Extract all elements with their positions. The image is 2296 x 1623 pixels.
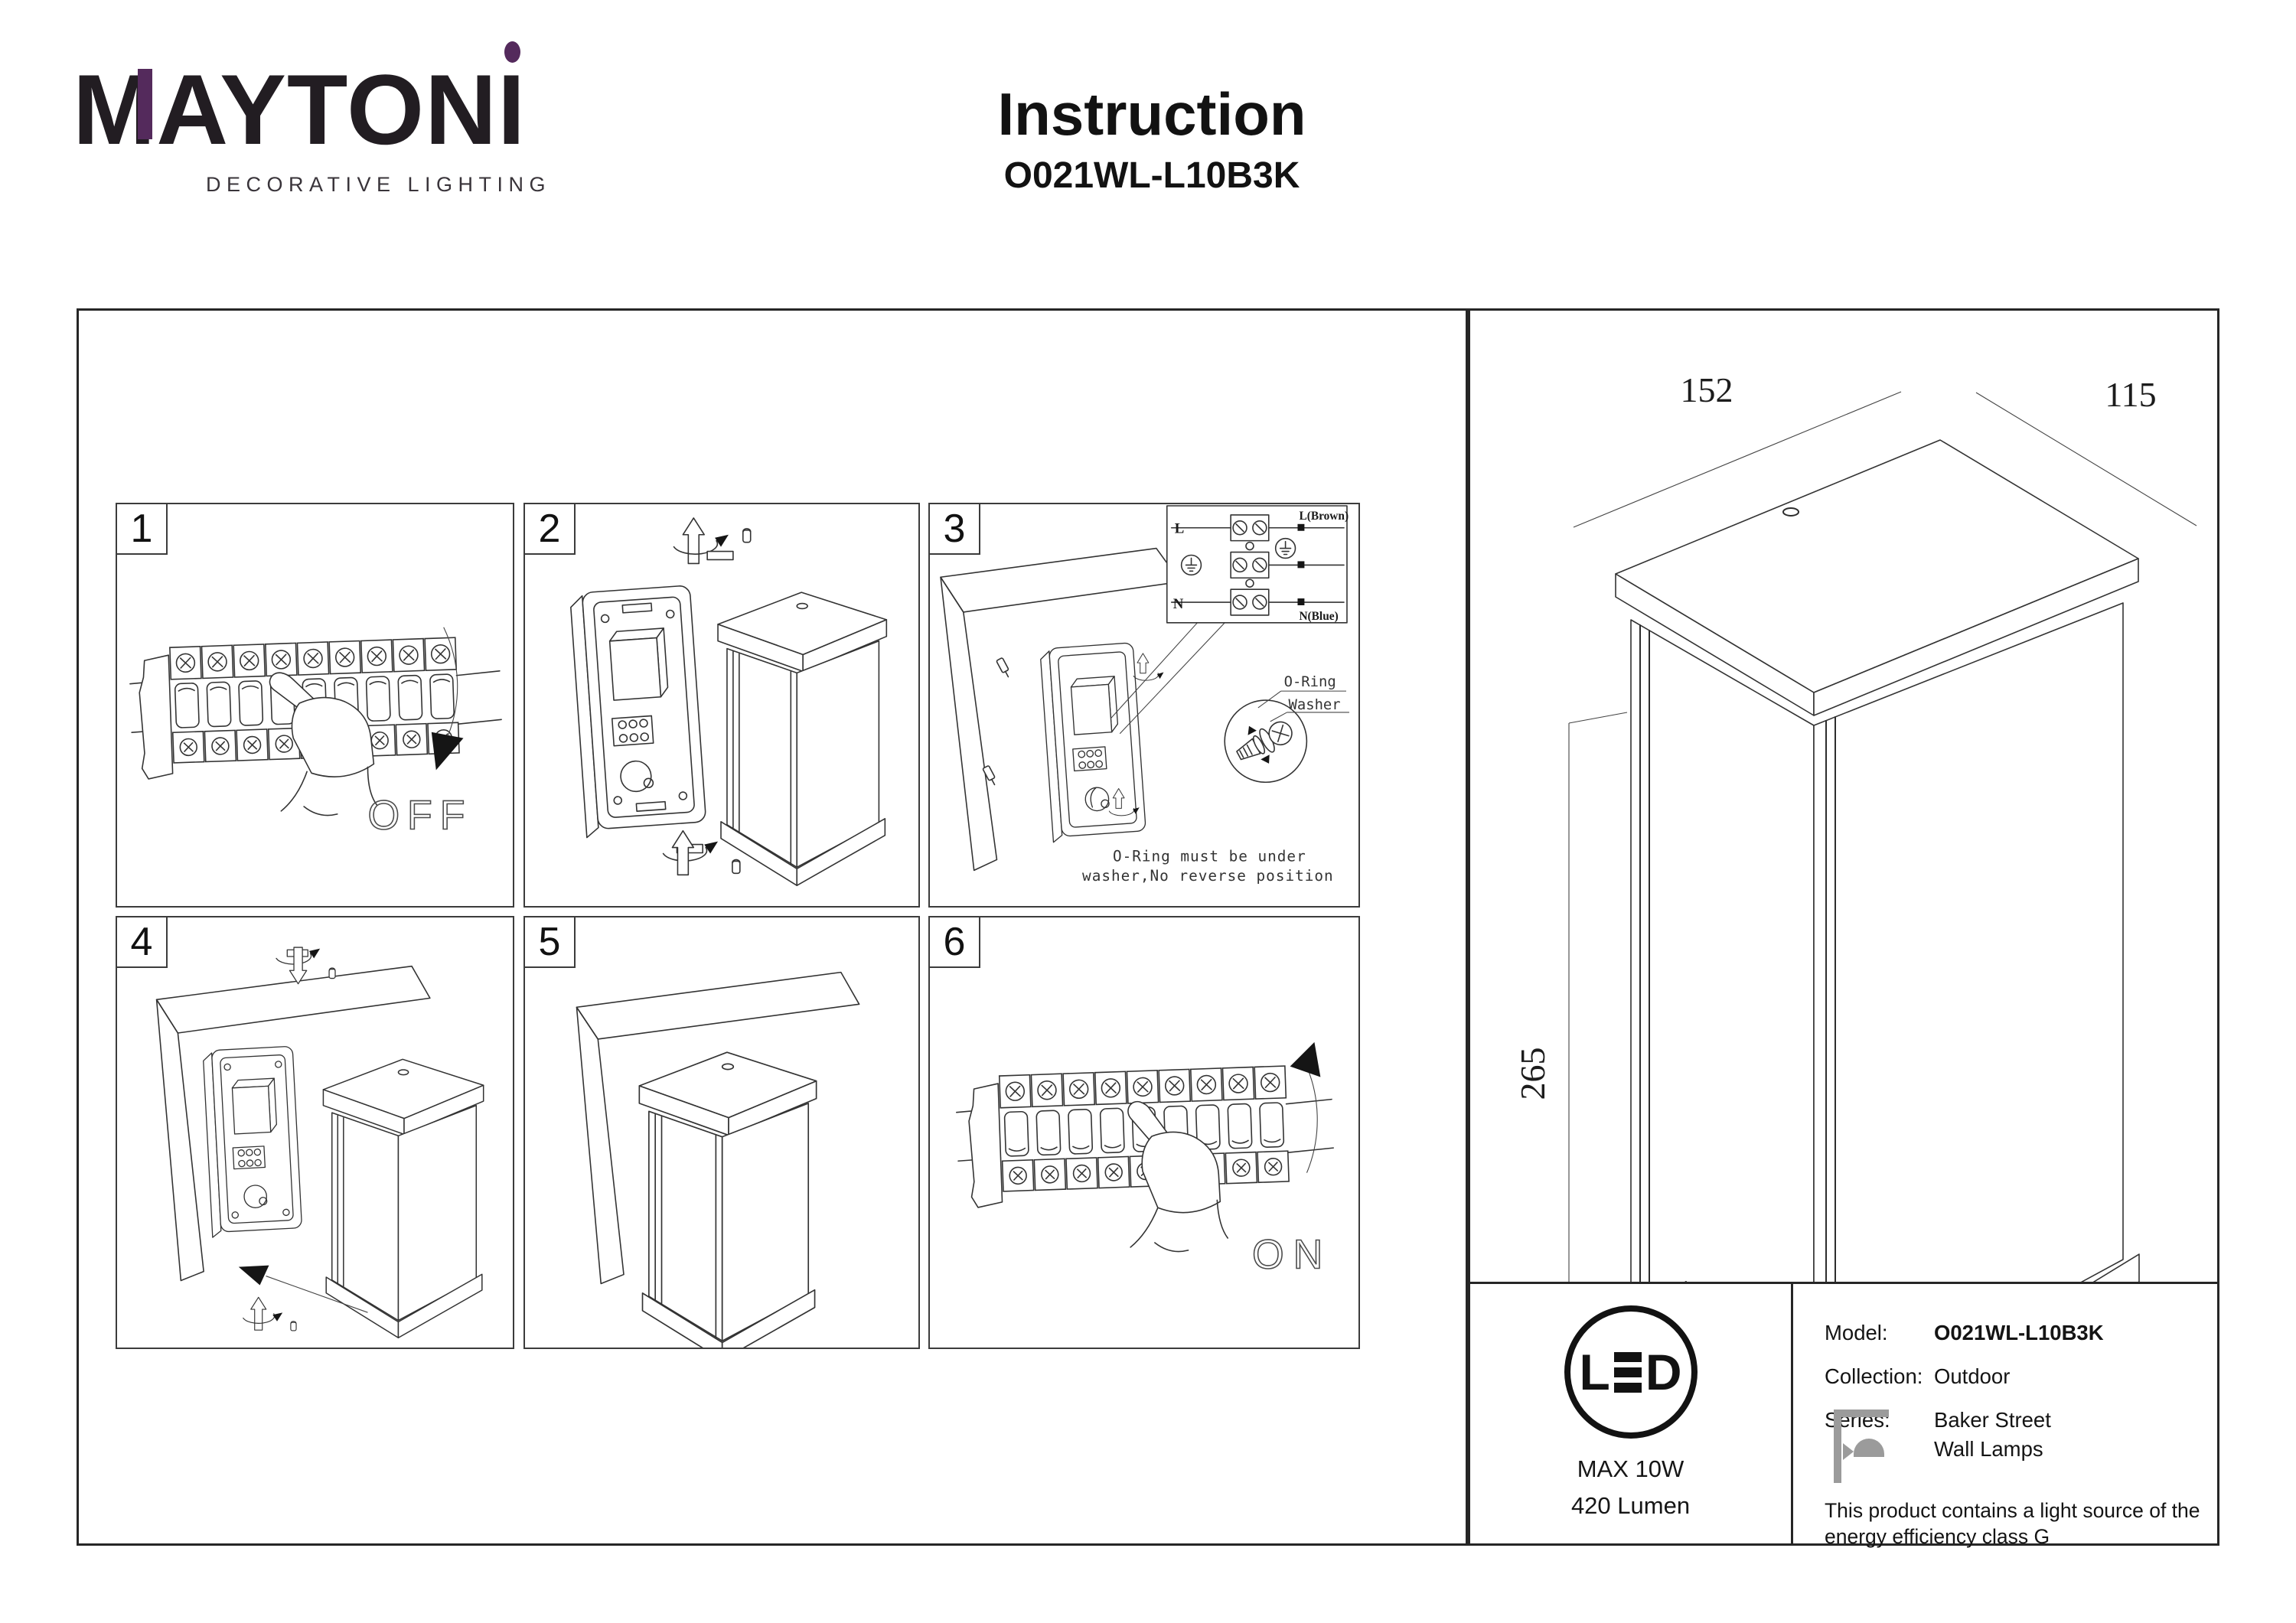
wiring-illustration: L N L(Brown) N(Blue) O-Ring Washer xyxy=(930,504,1358,906)
product-info-box: L D MAX 10W 420 Lumen Model: O021WL-L10B… xyxy=(1470,1282,2217,1543)
breaker-off-illustration: OFF xyxy=(117,504,513,906)
logo-purple-dot xyxy=(504,41,520,63)
on-label: ON xyxy=(1252,1232,1332,1278)
step-6-panel: 6 xyxy=(928,916,1360,1349)
step-number: 4 xyxy=(117,917,168,968)
width-dimension: 152 xyxy=(1681,370,1733,409)
earth-icon xyxy=(1276,539,1296,559)
neutral-label: N xyxy=(1173,596,1184,612)
type-icon-slot xyxy=(1825,1437,1934,1483)
off-label: OFF xyxy=(367,793,472,839)
screw-icon xyxy=(996,657,1012,678)
live-label: L xyxy=(1175,521,1185,537)
neutral-wire-label: N(Blue) xyxy=(1299,610,1338,623)
oring-detail: O-Ring Washer xyxy=(1225,674,1349,782)
depth-dimension: 115 xyxy=(2105,375,2156,414)
back-plate-drawing xyxy=(1040,643,1146,842)
back-plate-drawing xyxy=(570,585,707,838)
lamp-body-drawing xyxy=(718,592,886,885)
step-number: 6 xyxy=(930,917,980,968)
step-3-panel: 3 xyxy=(928,503,1360,908)
washer-label: Washer xyxy=(1289,697,1341,713)
luminous-flux: 420 Lumen xyxy=(1571,1492,1690,1520)
document-header: Instruction O021WL-L10B3K xyxy=(765,84,1538,197)
wall-lamp-icon xyxy=(1834,1410,1889,1483)
collection-row: Collection: Outdoor xyxy=(1825,1364,2226,1389)
collection-value: Outdoor xyxy=(1934,1364,2226,1389)
wall-hatch xyxy=(576,973,859,1039)
wall-hatch xyxy=(941,549,1181,612)
brand-logo: MAYTONI DECORATIVE LIGHTING xyxy=(73,60,551,197)
live-wire-label: L(Brown) xyxy=(1299,510,1349,523)
led-letter-d: D xyxy=(1645,1347,1682,1397)
assembled-lamp-drawing xyxy=(639,1052,816,1348)
max-power: MAX 10W xyxy=(1577,1455,1684,1483)
oring-note-line2: washer,No reverse position xyxy=(1082,867,1334,885)
model-row: Model: O021WL-L10B3K xyxy=(1825,1321,2226,1345)
type-row: Wall Lamps xyxy=(1825,1437,2226,1483)
screw-down-icon xyxy=(276,947,335,984)
back-plate-drawing xyxy=(203,1046,302,1237)
led-spec-cell: L D MAX 10W 420 Lumen xyxy=(1470,1284,1793,1543)
step-2-panel: 2 xyxy=(523,503,920,908)
step-number: 2 xyxy=(525,504,576,555)
led-letter-e xyxy=(1614,1352,1642,1393)
brand-tagline: DECORATIVE LIGHTING xyxy=(73,173,551,197)
lamp-body-drawing xyxy=(323,1059,483,1338)
collection-label: Collection: xyxy=(1825,1364,1934,1389)
step-1-panel: 1 xyxy=(116,503,514,908)
page-title: Instruction xyxy=(765,84,1538,144)
arrow-up-icon xyxy=(1290,1042,1321,1077)
step-4-panel: 4 xyxy=(116,916,514,1349)
oring-note-line1: O-Ring must be under xyxy=(1113,847,1306,865)
model-value: O021WL-L10B3K xyxy=(1934,1321,2226,1345)
mounting-illustration xyxy=(117,917,513,1348)
arrow-left-icon xyxy=(239,1266,269,1286)
model-label: Model: xyxy=(1825,1321,1934,1345)
earth-icon xyxy=(1182,555,1202,575)
mounted-lamp-illustration xyxy=(525,917,918,1348)
step-number: 5 xyxy=(525,917,576,968)
instruction-sheet: { "brand": { "name": "MAYTONI", "tagline… xyxy=(0,0,2296,1623)
breaker-on-illustration: ON xyxy=(930,917,1358,1348)
step-number: 1 xyxy=(117,504,168,555)
disassembly-illustration xyxy=(525,504,918,906)
energy-note: This product contains a light source of … xyxy=(1825,1498,2226,1550)
logo-purple-stem xyxy=(138,69,152,139)
wiring-diagram: L N L(Brown) N(Blue) xyxy=(1167,506,1349,623)
height-dimension: 265 xyxy=(1513,1048,1552,1100)
type-value: Wall Lamps xyxy=(1934,1437,2226,1462)
model-number: O021WL-L10B3K xyxy=(765,155,1538,197)
led-word: L D xyxy=(1580,1347,1682,1397)
screw-up-icon xyxy=(243,1297,296,1331)
led-letter-l: L xyxy=(1580,1347,1610,1397)
product-details-cell: Model: O021WL-L10B3K Collection: Outdoor… xyxy=(1793,1284,2226,1543)
led-logo-icon: L D xyxy=(1564,1305,1698,1439)
step-5-panel: 5 xyxy=(523,916,920,1349)
oring-label: O-Ring xyxy=(1284,674,1336,690)
brand-name: MAYTONI xyxy=(73,60,526,159)
step-number: 3 xyxy=(930,504,980,555)
series-value: Baker Street xyxy=(1934,1408,2226,1432)
unscrew-top-icon xyxy=(673,518,750,564)
